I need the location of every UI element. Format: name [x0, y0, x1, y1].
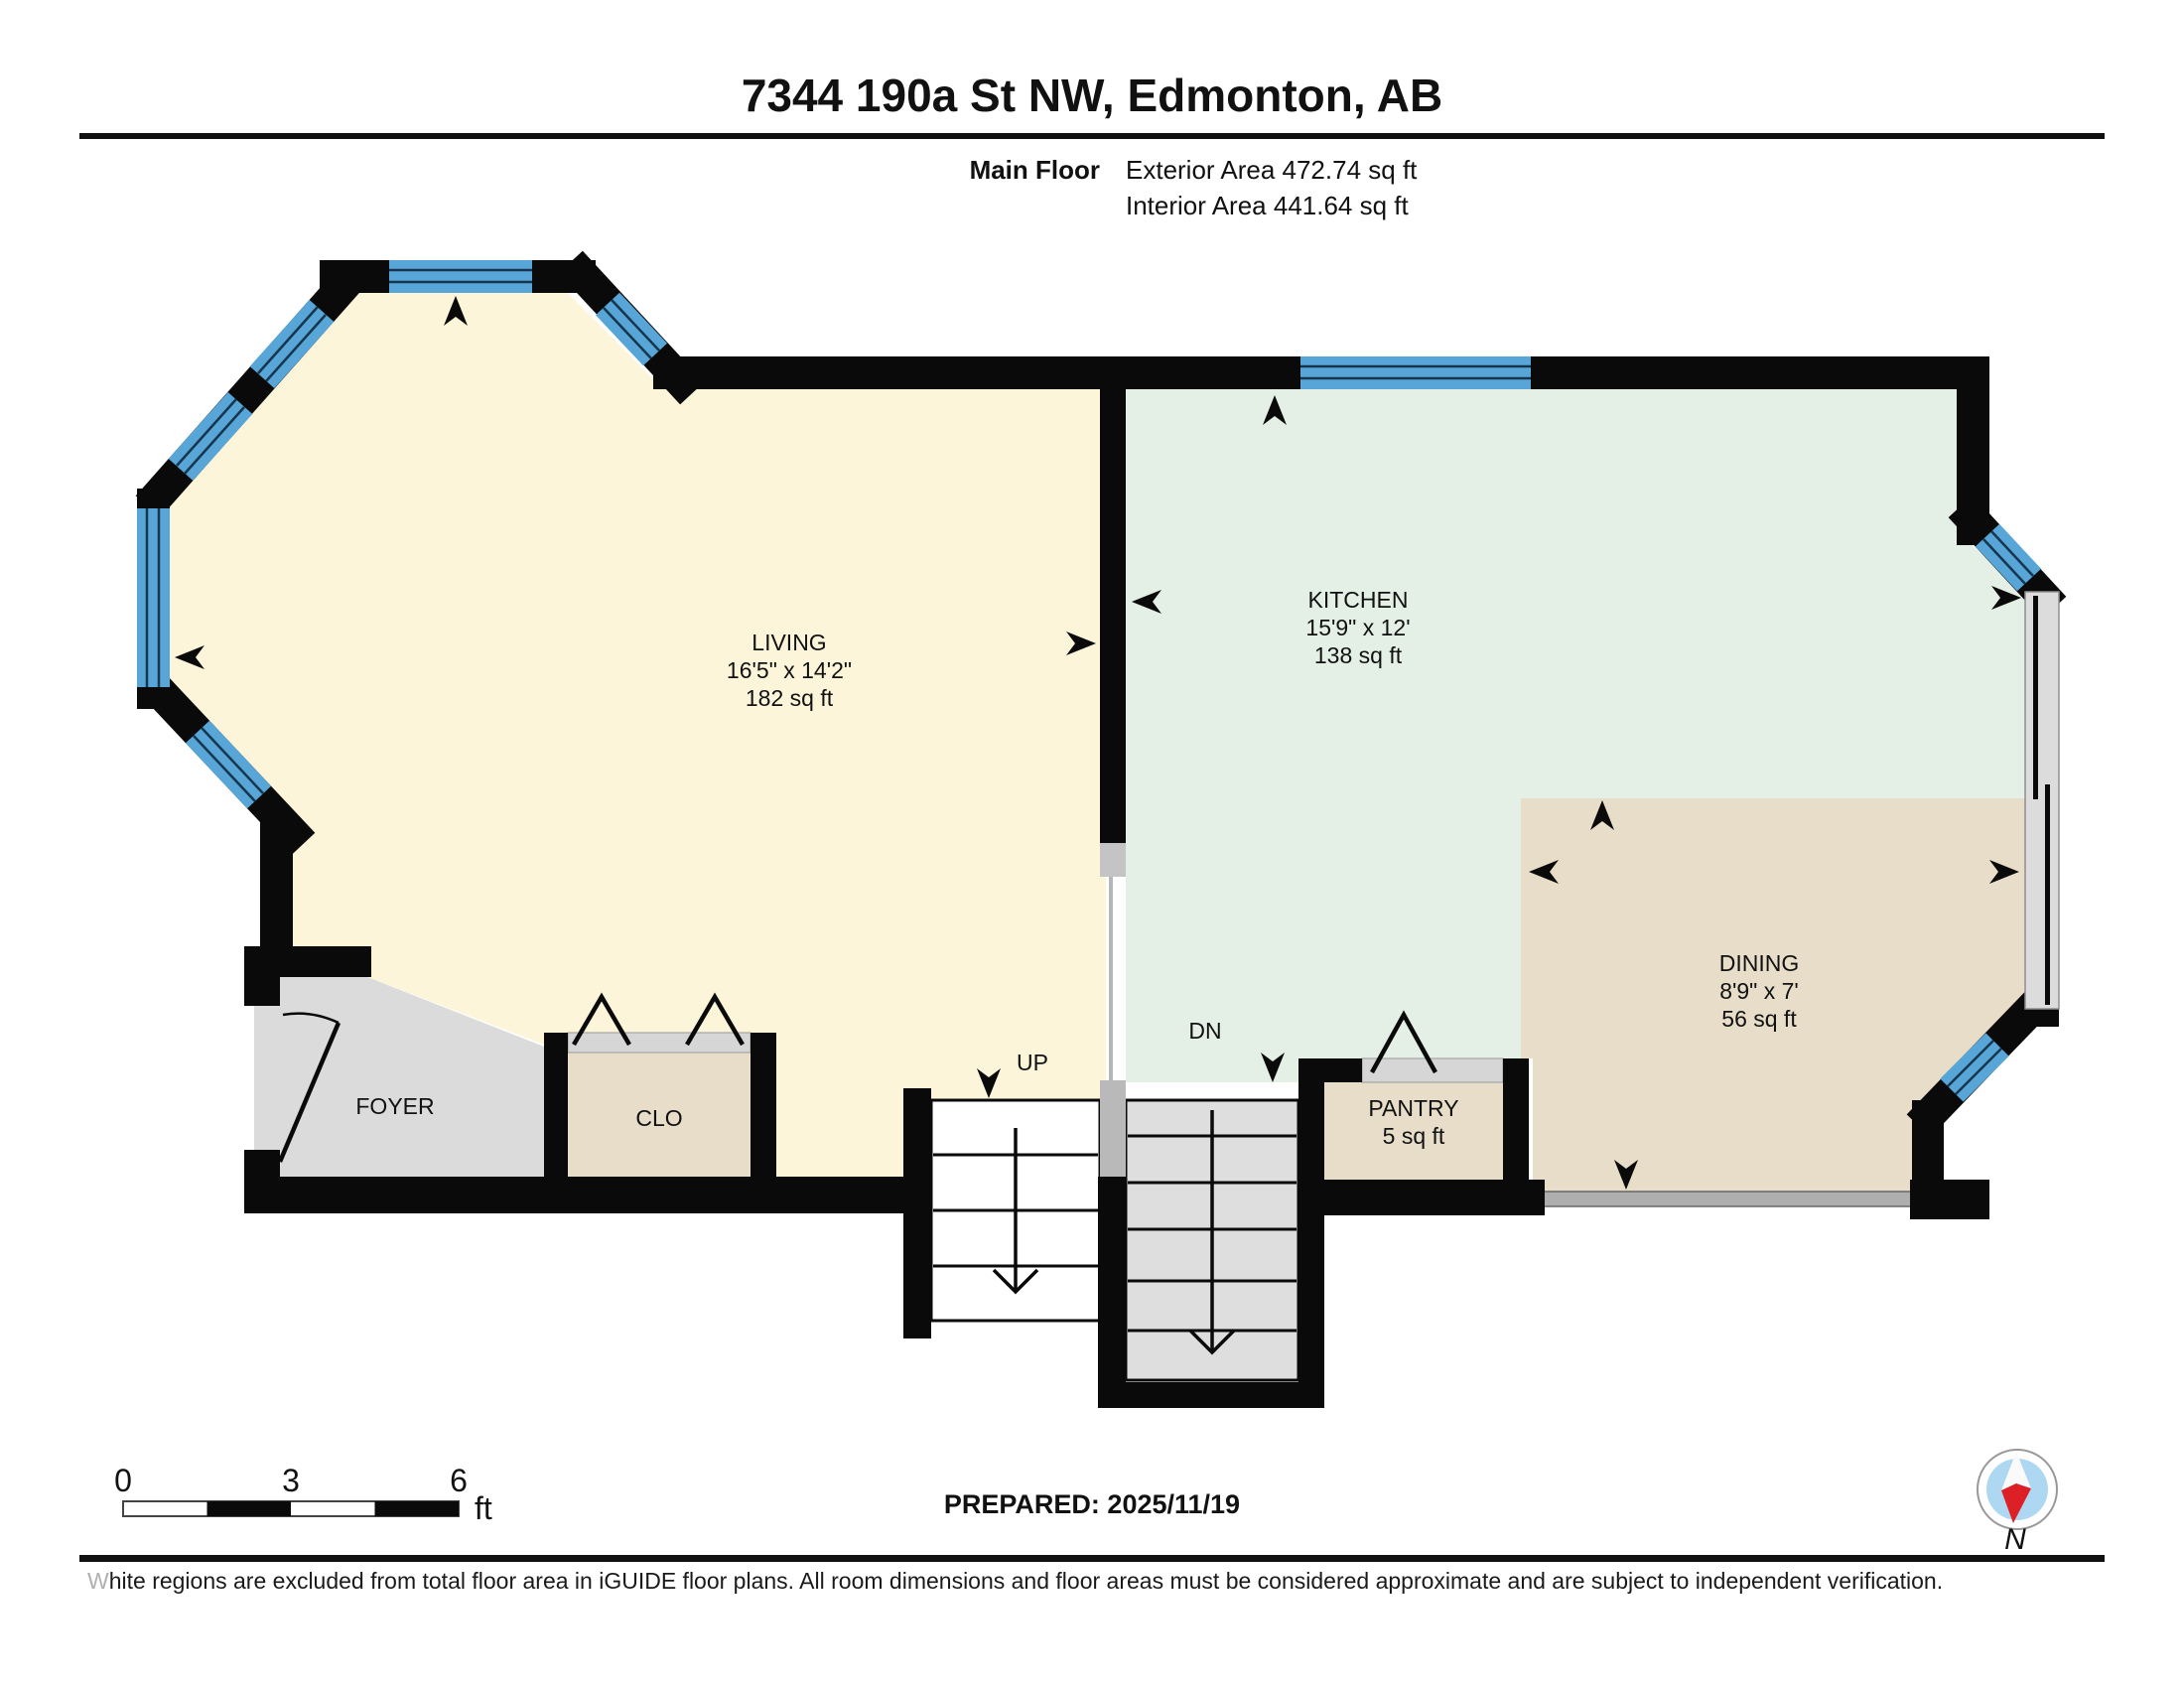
wall-segment	[244, 1177, 931, 1213]
wall-segment	[1503, 1058, 1529, 1182]
closet-door-track	[568, 1033, 751, 1053]
pantry-label: PANTRY	[1368, 1095, 1458, 1121]
wall-segment	[1298, 1058, 1324, 1382]
sliding-patio-door	[2025, 592, 2059, 1009]
floor-label: Main Floor	[970, 155, 1100, 185]
disclaimer-first-letter: W	[87, 1568, 109, 1594]
disclaimer-rest: hite regions are excluded from total flo…	[109, 1568, 1943, 1594]
living-area: 182 sq ft	[746, 685, 834, 711]
window	[389, 260, 532, 293]
scale-bar: 0 3 6 ft	[114, 1463, 492, 1526]
wall-end-jamb	[1100, 843, 1126, 877]
stairs-up	[931, 1100, 1100, 1321]
room-boundary-line	[1109, 877, 1113, 1082]
header-rule	[79, 133, 2105, 139]
scale-end-label: 6	[450, 1463, 468, 1498]
compass: N	[1978, 1450, 2057, 1556]
kitchen-dimensions: 15'9" x 12'	[1305, 615, 1410, 640]
window	[1300, 356, 1531, 389]
wall-segment	[1098, 1382, 1324, 1408]
floorplan-svg: 7344 190a St NW, Edmonton, AB Main Floor…	[0, 0, 2184, 1688]
living-dimensions: 16'5" x 14'2"	[727, 657, 852, 683]
dining-bottom-rail	[1537, 1192, 1912, 1206]
scale-bar-segment	[207, 1501, 292, 1516]
dining-dimensions: 8'9" x 7'	[1719, 978, 1799, 1004]
floorplan-page: 7344 190a St NW, Edmonton, AB Main Floor…	[0, 0, 2184, 1688]
kitchen-label: KITCHEN	[1308, 587, 1409, 613]
closet-label: CLO	[635, 1105, 682, 1131]
disclaimer-text: White regions are excluded from total fl…	[87, 1568, 1943, 1594]
wall-segment	[1298, 1180, 1545, 1215]
prepared-date: PREPARED: 2025/11/19	[944, 1489, 1240, 1519]
footer-rule	[79, 1555, 2105, 1562]
footer: PREPARED: 2025/11/19 N White regions are…	[79, 1450, 2105, 1594]
wall-segment	[903, 1088, 931, 1338]
page-title: 7344 190a St NW, Edmonton, AB	[742, 70, 1442, 121]
scale-bar-segment	[375, 1501, 460, 1516]
room-fills	[165, 293, 2030, 1196]
interior-area-label: Interior Area 441.64 sq ft	[1126, 191, 1410, 220]
sliding-door-track	[2025, 592, 2059, 1009]
window	[137, 508, 170, 687]
wall-segment	[544, 1033, 568, 1180]
stairs-down	[1126, 1100, 1298, 1380]
kitchen-area: 138 sq ft	[1314, 642, 1403, 668]
dining-area: 56 sq ft	[1721, 1006, 1797, 1032]
sliding-door-panel	[2033, 596, 2038, 799]
living-label: LIVING	[751, 630, 826, 655]
wall-segment	[751, 1033, 776, 1180]
scale-unit-label: ft	[475, 1490, 492, 1526]
wall-segment	[1324, 1058, 1362, 1082]
sliding-door-panel	[2045, 784, 2050, 1005]
wall-segment	[1100, 356, 1126, 843]
pantry-area: 5 sq ft	[1383, 1123, 1445, 1149]
stairs-down-jamb	[1100, 1080, 1126, 1177]
stairs-up-label: UP	[1017, 1050, 1048, 1075]
exterior-area-label: Exterior Area 472.74 sq ft	[1126, 155, 1418, 185]
foyer-label: FOYER	[355, 1093, 434, 1119]
stairs-down-label: DN	[1188, 1018, 1221, 1044]
wall-segment	[244, 946, 280, 1006]
dining-label: DINING	[1719, 950, 1800, 976]
scale-mid-label: 3	[282, 1463, 300, 1498]
header: 7344 190a St NW, Edmonton, AB Main Floor…	[79, 70, 2105, 220]
compass-north-label: N	[2004, 1523, 2026, 1556]
scale-start-label: 0	[114, 1463, 132, 1498]
wall-segment	[1098, 1177, 1126, 1382]
